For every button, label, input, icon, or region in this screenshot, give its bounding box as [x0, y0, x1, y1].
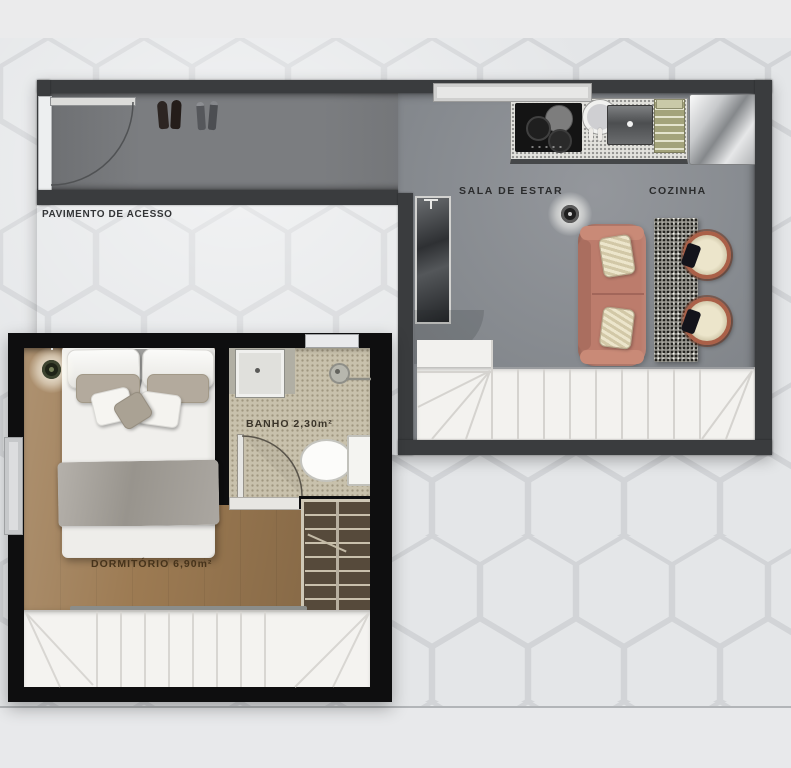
bathroom-door-leaf — [237, 434, 244, 499]
shower-drain — [255, 368, 260, 373]
label-living-room: SALA DE ESTAR — [459, 185, 563, 197]
shower-tray-icon — [236, 350, 284, 397]
shower-head-icon — [329, 363, 350, 384]
refrigerator-icon — [689, 94, 758, 165]
label-bedroom: DORMITÓRIO 6,90m² — [91, 558, 212, 570]
dish-rack-top — [656, 99, 683, 109]
entry-door-opening — [38, 96, 52, 192]
wardrobe-shelves — [305, 502, 336, 614]
door-symbol — [430, 201, 432, 209]
bedside-lamp-center — [49, 367, 54, 372]
shoe-icon — [170, 100, 182, 129]
wardrobe-divider — [336, 502, 339, 614]
blanket-icon — [57, 460, 219, 528]
toilet-icon — [300, 439, 353, 482]
label-access-floor: PAVIMENTO DE ACESSO — [42, 209, 173, 220]
sofa-cushion-icon — [599, 306, 636, 350]
bed-foot — [62, 526, 215, 557]
toilet-flush-button — [356, 455, 362, 461]
dining-chair-icon — [683, 297, 731, 345]
floor-plan-image: PAVIMENTO DE ACESSO SALA DE ESTAR COZINH… — [0, 0, 791, 768]
burner-icon — [526, 116, 551, 141]
oven-knob — [627, 121, 633, 127]
cooktop-knobs — [529, 145, 565, 149]
wall — [398, 440, 772, 455]
mirror-door-panel — [415, 196, 451, 324]
bathroom-door-opening — [229, 497, 301, 510]
shower-head-center — [335, 369, 340, 374]
label-bathroom: BANHO 2,30m² — [246, 418, 333, 430]
wall — [370, 333, 392, 702]
faucet-icon — [589, 128, 593, 141]
window-icon — [305, 334, 359, 348]
dining-chair-icon — [683, 231, 731, 279]
ceiling-light-center — [568, 212, 572, 216]
sofa-cushion-icon — [598, 234, 636, 279]
wall — [37, 190, 398, 205]
sofa-seam — [592, 293, 644, 295]
entry-door-leaf — [50, 97, 136, 106]
wall — [755, 80, 772, 455]
burner-icon — [548, 129, 572, 153]
window-icon — [4, 437, 23, 535]
stairs-lower — [24, 610, 370, 687]
label-kitchen: COZINHA — [649, 185, 707, 197]
wardrobe-shelves — [339, 502, 370, 614]
wall — [8, 687, 392, 702]
corridor-floor — [50, 93, 413, 190]
background-top-band — [0, 0, 791, 39]
background-bottom-band — [0, 708, 791, 768]
faucet-icon — [598, 128, 602, 141]
sofa-backrest — [578, 240, 591, 350]
wall — [37, 80, 772, 93]
wall — [398, 193, 413, 455]
sofa-armrest — [580, 350, 644, 364]
wardrobe-icon — [301, 499, 378, 623]
stairs-upper — [417, 367, 755, 440]
window-icon — [433, 83, 592, 102]
